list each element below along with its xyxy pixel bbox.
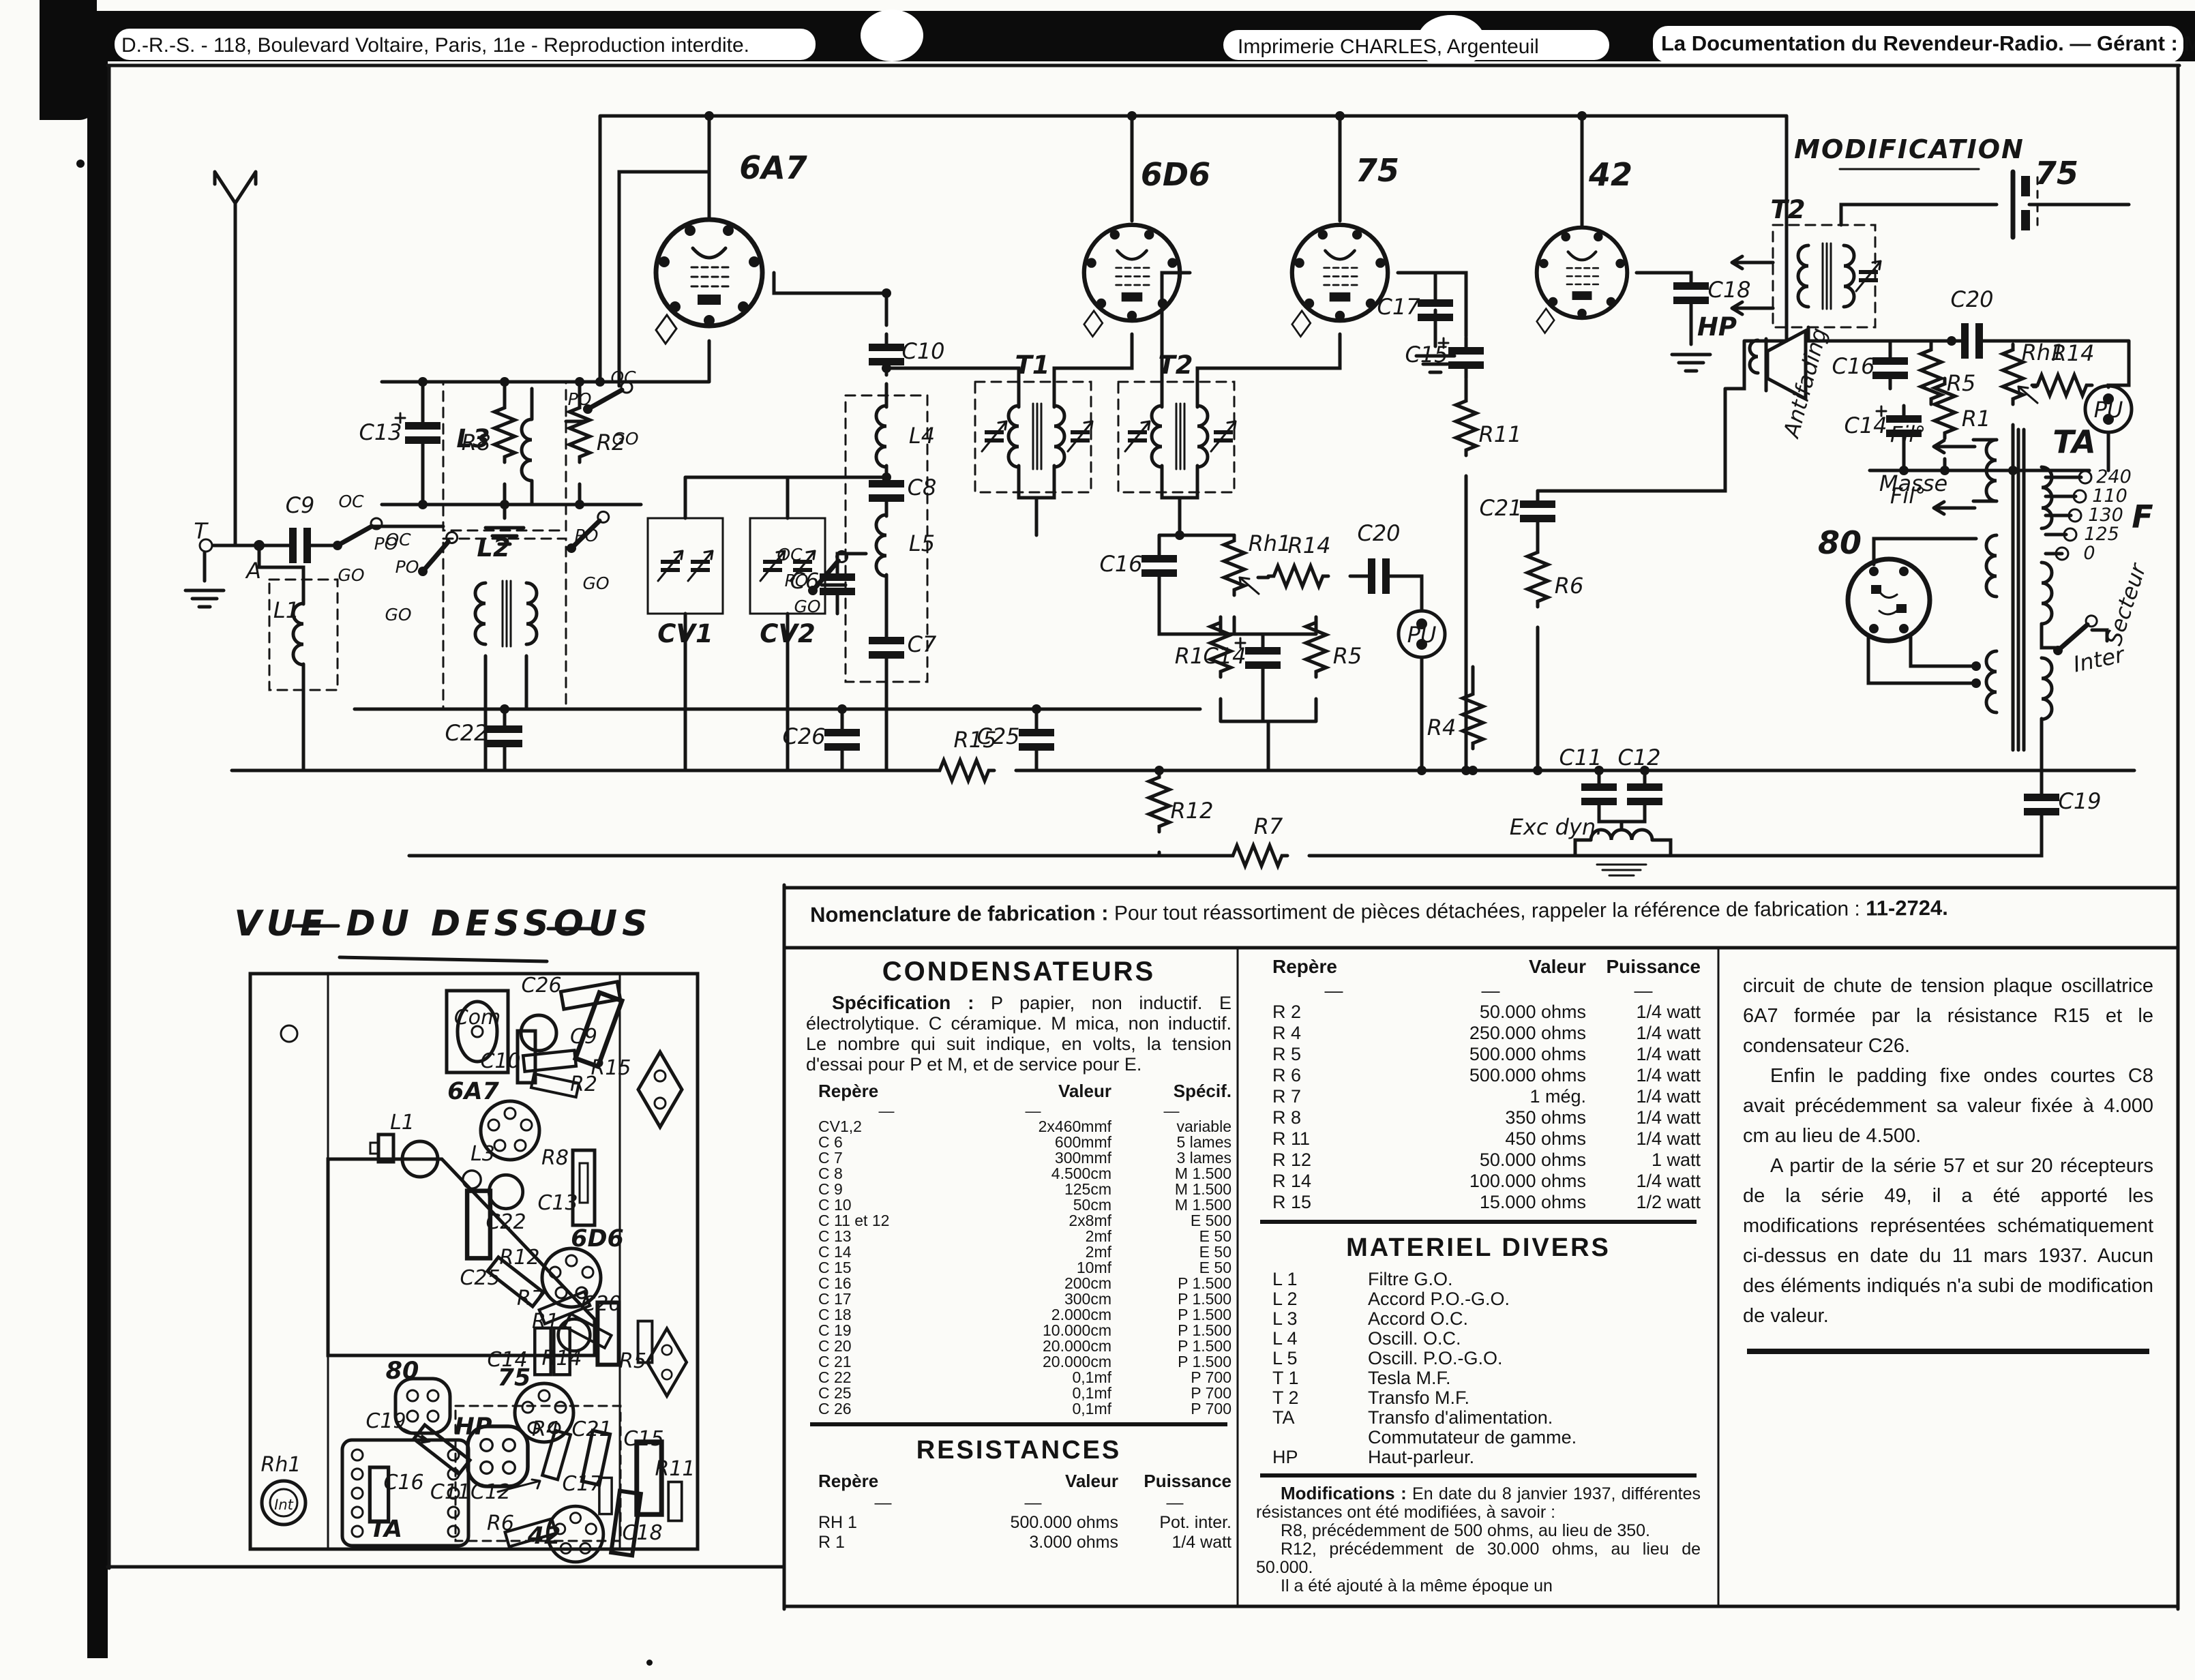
core-symbol [1823,243,1831,309]
component-label: C14 [1203,643,1246,669]
vres-symbol [1527,547,1548,607]
component-label: C26 [521,974,561,997]
component-label: R6 [1555,573,1584,599]
table-header: RepèreValeurSpécif. [806,1081,1231,1102]
cap-symbol [280,528,320,563]
coil2-symbol [2042,562,2052,624]
component-label: F [2132,498,2153,535]
coil2-symbol [1054,406,1064,467]
condensateurs-spec: Spécification : P papier, non inductif. … [806,993,1231,1075]
component-label: PO [785,571,809,590]
table-row: C 11 et 122x8mfE 500 [806,1212,1231,1227]
hole-symbol [463,1171,481,1188]
component-label: CV1 [657,619,713,648]
vue-title-group: VUE DU DESSOUS [234,903,652,961]
vcap-symbol [1141,545,1177,586]
component-label: OC [338,492,364,511]
component-label: C22 [486,1210,526,1234]
component-label: R5 [1947,370,1976,396]
component-label: C11C12 [430,1480,511,1504]
table-row: C 1050cmM 1.500 [806,1196,1231,1212]
scanned-schematic-page: { "header": { "left": "D.-R.-S. - 118, B… [0,0,2195,1680]
component-label: R7 [517,1287,544,1310]
component-label: L5 [909,530,935,556]
component-label: C11 [1559,745,1602,770]
divider [1747,1349,2149,1354]
component-label: 80 [386,1357,419,1385]
condensateurs-column: CONDENSATEURS Spécification : P papier, … [806,956,1231,1552]
component-label: R5 [619,1349,646,1373]
component-label: C25 [460,1266,500,1290]
ant-symbol [215,172,256,254]
component-label: MODIFICATION [1794,134,2025,164]
vres-symbol [1921,344,1941,404]
table-row: L 2Accord P.O.-G.O. [1256,1289,1701,1308]
component-label: 125 [2084,524,2119,545]
component-label: L3 [471,1142,495,1166]
component-label: 110 [2092,485,2127,507]
component-label: R1 [1962,406,1991,432]
materiel-divers-title: MATERIEL DIVERS [1256,1233,1701,1263]
vcap-symbol [1520,491,1555,532]
component-label: Rh1 [261,1453,301,1477]
component-label: C16 [1832,353,1875,379]
arrL-symbol [1732,302,1773,314]
component-label: C19 [365,1409,406,1433]
component-label: 75 [1356,152,1399,189]
tube-symbol [1084,225,1180,337]
component-label: T1 [1015,350,1050,380]
component-label: A [245,558,261,584]
coil-symbol [1152,406,1162,467]
table-row: L 3Accord O.C. [1256,1308,1701,1328]
component-label: C12 [1617,745,1660,770]
component-label: Masse [1879,470,1947,496]
modifications-intro: Modifications : En date du 8 janvier 193… [1256,1484,1701,1522]
component-label: 42 [527,1522,561,1550]
vcap-symbol [1872,348,1908,389]
table-row: R 8350 ohms1/4 watt [1256,1107,1701,1128]
coil2-symbol [1197,406,1208,467]
component-label: R7 [1254,813,1283,839]
component-label: PO [575,526,599,545]
component-label: Inter [2071,641,2127,677]
component-label: L1 [390,1111,415,1135]
vcap-symbol [1581,774,1617,815]
cap-symbol [1952,323,1992,359]
chassis-parts: ComC26C9C10R156A7R2L1L3R8C13C22R126D6C25… [261,974,696,1562]
modifications-title: Modifications : [1281,1483,1407,1503]
component-label: R5 [1333,643,1362,669]
coil2-symbol [2042,658,2052,719]
res-symbol [1268,566,1328,586]
spec-bold: Spécification : [832,992,974,1013]
component-label: R2 [570,1072,597,1096]
table-row: R 6500.000 ohms1/4 watt [1256,1065,1701,1086]
component-label: R12 [1171,798,1214,824]
component-label: C16 [383,1471,423,1495]
table-header: RepèreValeurPuissance [806,1471,1231,1493]
divider [1260,1473,1697,1477]
component-label: C20 [1950,286,1993,312]
component-label: C20 [1357,520,1400,546]
component-label: C8 [908,475,937,500]
vcap-symbol [824,719,860,760]
vres-symbol [494,402,515,462]
nomenclature-header-bold: Nomenclature de fabrication : [810,901,1109,927]
component-label: Com [454,1006,501,1030]
res-symbol [934,760,994,781]
materiel-divers-table: L 1Filtre G.O.L 2Accord P.O.-G.O.L 3Acco… [1256,1269,1701,1467]
component-label: 75 [498,1364,531,1392]
vcap-symbol [487,716,522,757]
component-label: Rh1 [1249,530,1291,556]
component-label: C26 [782,723,825,749]
component-label: OC [610,367,636,387]
table-row: C 260,1mfP 700 [806,1400,1231,1415]
divider [1260,1220,1697,1224]
table-row: C 1510mfE 50 [806,1259,1231,1274]
tube-symbol [656,220,762,344]
core-symbol [1176,404,1184,469]
component-label: 42 [1588,156,1632,193]
table-row: C 6600mmf5 lames [806,1133,1231,1149]
tcap-symbol [982,421,1006,451]
component-label: 0 [2083,543,2095,564]
cvbox-symbol [648,518,723,614]
component-label: R4 [532,1417,559,1441]
component-label: C18 [622,1521,662,1545]
modifications-block: Modifications : En date du 8 janvier 193… [1256,1484,1701,1595]
component-label: GO [794,597,820,616]
vue-title: VUE DU DESSOUS [234,903,652,944]
paragraph: A partir de la série 57 et sur 20 récept… [1743,1151,2153,1331]
gnd-symbol [1672,355,1710,371]
component-label: 6A7 [739,149,807,186]
coil-symbol [1798,245,1808,307]
component-label: R15 [954,727,997,753]
dplate-symbol [638,1052,682,1127]
component-label: C10 [901,338,944,364]
table-row: T 1Tesla M.F. [1256,1368,1701,1387]
paragraph: circuit de chute de tension plaque oscil… [1743,971,2153,1061]
arrL-symbol [1934,440,1975,453]
coil-symbol [522,419,532,481]
component-label: TA [370,1516,402,1543]
component-label: C17 [1377,294,1420,320]
resistances-table: RepèreValeurPuissance———RH 1500.000 ohms… [806,1471,1231,1552]
tube-symbol [1537,228,1628,333]
component-label: PU [2094,397,2123,423]
bighole-symbol [521,1015,556,1051]
component-label: R14 [541,1347,582,1370]
table-header: RepèreValeurPuissance [1256,956,1701,980]
table-row: Commutateur de gamme. [1256,1427,1701,1447]
vcap-symbol [1627,774,1662,815]
table-row: R 11450 ohms1/4 watt [1256,1128,1701,1150]
fabrication-reference: 11-2724. [1866,896,1948,920]
vcap-symbol [1673,273,1709,314]
divider [810,1422,1227,1426]
tcap-symbol [1068,421,1092,451]
table-row: C 182.000cmP 1.500 [806,1306,1231,1321]
hbar-symbol [523,1050,576,1071]
dbox-symbol [443,539,566,709]
tacore-symbol [2013,430,2024,750]
component-label: R2 [597,430,626,455]
dot-symbol [254,540,265,551]
component-label: GO [582,573,609,593]
component-label: 75 [2035,155,2078,192]
component-label: R6 [487,1512,514,1535]
component-label: R8 [462,430,491,455]
component-label: 80 [1818,524,1862,561]
coil-symbol [876,406,886,467]
component-label: R14 [1288,532,1331,558]
table-row: TATransfo d'alimentation. [1256,1407,1701,1427]
component-label: 6A7 [447,1078,499,1105]
component-label: C21 [571,1417,612,1441]
vcap-symbol [1019,719,1054,760]
component-label: C22 [445,720,488,746]
ecap-symbol [395,412,441,453]
res-symbol [2032,375,2092,395]
table-row: R 1515.000 ohms1/2 watt [1256,1192,1701,1213]
component-label: R14 [2052,340,2095,366]
tube-symbol [1292,225,1388,337]
component-label: GO [385,605,411,625]
component-label: C20 [581,1292,621,1316]
table-row: C 16200cmP 1.500 [806,1274,1231,1290]
component-label: C7 [908,631,937,657]
table-row: T 2Transfo M.F. [1256,1387,1701,1407]
hatch-symbol [1597,865,1646,875]
table-row: C 1910.000cmP 1.500 [806,1321,1231,1337]
tcap-symbol [1856,261,1881,291]
tube80-symbol [1848,559,1930,641]
tcap-symbol [1125,421,1150,451]
component-label: L4 [909,423,935,449]
component-label: R8 [541,1146,569,1170]
component-label: C14 [1844,412,1887,438]
coil-symbol [475,583,486,644]
vres-symbol [1149,772,1169,832]
component-label: 6D6 [571,1225,624,1252]
vbar-symbol [668,1482,682,1521]
coil-symbol [1986,651,1997,712]
component-label: C21 [1479,495,1522,521]
vcap-symbol [869,627,904,668]
component-label: GO [338,565,364,585]
component-label: C19 [2058,788,2101,814]
core-symbol [1033,404,1041,469]
table-row: HPHaut-parleur. [1256,1447,1701,1467]
table-row: C 132mfE 50 [806,1227,1231,1243]
gnd-symbol [185,590,224,607]
component-label: PU [1407,622,1437,648]
table-row: R 250.000 ohms1/4 watt [1256,1002,1701,1023]
component-label: Secteur [2100,559,2151,648]
component-label: C13 [537,1191,578,1215]
coil-symbol [876,515,886,576]
vres-symbol [1456,395,1476,455]
condensateurs-title: CONDENSATEURS [806,956,1231,987]
table-row: ——— [806,1493,1231,1513]
component-label: PO [395,557,419,577]
table-row: C 220,1mfP 700 [806,1368,1231,1384]
hole-symbol [281,1025,297,1042]
component-label: C16 [1099,551,1142,577]
table-row: C 17300cmP 1.500 [806,1290,1231,1306]
component-label: C10 [480,1049,520,1073]
resistances-title: RESISTANCES [806,1436,1231,1466]
component-label: OC [777,545,803,565]
component-label: R11 [1479,421,1522,447]
middle-column: RepèreValeurPuissance———R 250.000 ohms1/… [1256,956,1701,1595]
table-row: R 1250.000 ohms1 watt [1256,1150,1701,1171]
coil2-symbol [526,583,537,644]
table-row: L 1Filtre G.O. [1256,1269,1701,1289]
component-label: R4 [1427,715,1457,740]
component-label: 6D6 [1141,156,1210,193]
component-label: C18 [1707,277,1750,303]
table-row: C 9125cmM 1.500 [806,1180,1231,1196]
arrL-symbol [1732,256,1773,269]
res-symbol [1227,845,1287,866]
component-label: Exc dyn. [1510,814,1603,840]
coil2-symbol [1844,245,1854,307]
table-row: R 71 még.1/4 watt [1256,1086,1701,1107]
table-row: R 5500.000 ohms1/4 watt [1256,1044,1701,1065]
table-row: R 14100.000 ohms1/4 watt [1256,1171,1701,1192]
paragraph: R8, précédemment de 500 ohms, au lieu de… [1256,1522,1701,1540]
table-row: RH 1500.000 ohmsPot. inter. [806,1513,1231,1533]
paragraph: Il a été ajouté à la même époque un [1256,1577,1701,1595]
component-label: OC [385,530,411,550]
vcap-symbol [2024,784,2059,825]
modifications-items: R8, précédemment de 500 ohms, au lieu de… [1256,1522,1701,1595]
component-label: T2 [1771,195,1806,224]
component-label: C17 [562,1472,602,1496]
condensateurs-table: RepèreValeurSpécif.———CV1,22x460mmfvaria… [806,1081,1231,1415]
table-row: C 7300mmf3 lames [806,1149,1231,1165]
component-label: R12 [499,1246,539,1270]
arrL-symbol [1934,502,1975,514]
component-label: C15 [623,1427,663,1451]
component-label: T2 [1159,350,1193,380]
table-row: C 2120.000cmP 1.500 [806,1353,1231,1368]
table-row: C 142mfE 50 [806,1243,1231,1259]
continuation-text: circuit de chute de tension plaque oscil… [1743,971,2153,1331]
component-label: R1 [1175,643,1204,669]
component-label: HP [1697,312,1737,342]
table-row: C 2020.000cmP 1.500 [806,1337,1231,1353]
paragraph: Enfin le padding fixe ondes courtes C8 a… [1743,1061,2153,1151]
continuation-column: circuit de chute de tension plaque oscil… [1743,971,2153,1361]
table-row: C 250,1mfP 700 [806,1384,1231,1400]
table-row: ——— [806,1102,1231,1117]
table-row: R 13.000 ohms1/4 watt [806,1533,1231,1552]
table-row: L 5Oscill. P.O.-G.O. [1256,1348,1701,1368]
cap-symbol [1358,558,1399,594]
component-label: 130 [2088,505,2123,526]
component-label: CV2 [760,619,816,648]
resistances2-table: RepèreValeurPuissance———R 250.000 ohms1/… [1256,956,1701,1213]
table-row: C 84.500cmM 1.500 [806,1165,1231,1180]
coil-symbol [1009,406,1019,467]
component-label: C9 [286,492,315,518]
table-row: L 4Oscill. O.C. [1256,1328,1701,1348]
bighole-symbol [489,1175,522,1208]
coil-symbol [1986,535,1997,597]
nomenclature-header-text: Pour tout réassortiment de pièces détach… [1114,898,1860,925]
component-label: Int [274,1497,294,1513]
table-row: CV1,22x460mmfvariable [806,1117,1231,1133]
core-symbol [503,581,511,646]
component-label: HP [455,1413,492,1441]
table-row: ——— [1256,980,1701,1002]
component-label: 240 [2096,466,2132,487]
component-label: R11 [655,1457,695,1481]
tcap-symbol [1211,421,1236,451]
component-label: TA [2052,423,2095,460]
table-row: R 4250.000 ohms1/4 watt [1256,1023,1701,1044]
component-label: C13 [359,419,402,445]
paragraph: R12, précédemment de 30.000 ohms, au lie… [1256,1540,1701,1577]
